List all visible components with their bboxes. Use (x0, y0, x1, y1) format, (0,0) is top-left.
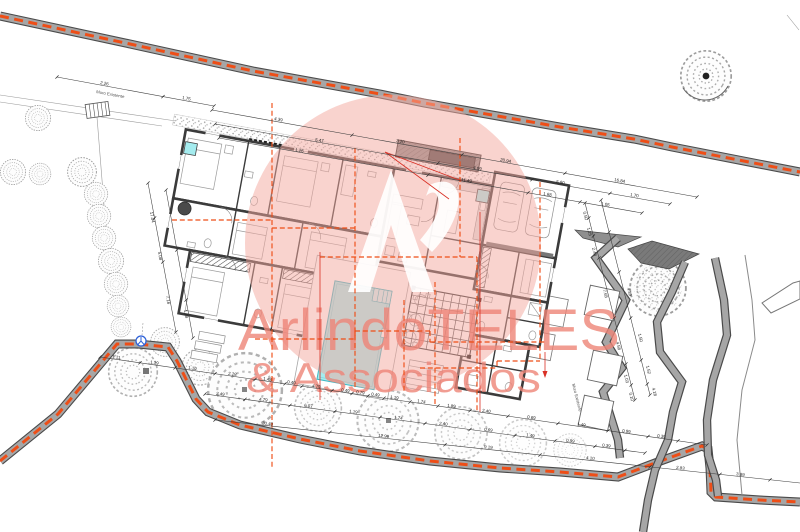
tree-symbol (87, 204, 111, 228)
tree-symbol (0, 159, 26, 185)
dimension-label: 5.08 (157, 251, 164, 261)
dimension-label: 1.70 (630, 192, 640, 199)
dimension-label: 0.99 (622, 428, 632, 434)
gate-symbol (85, 101, 110, 118)
tree-symbol (499, 419, 547, 467)
tree-symbol (29, 163, 51, 185)
dimension-label: 1.52 (645, 365, 652, 375)
dimension-label: 1.18 (183, 309, 190, 319)
corner-tick (787, 15, 799, 30)
water-tank (184, 142, 198, 156)
dimension-label: 7.16 (165, 295, 172, 305)
dimension-label: 4.18 (651, 387, 658, 397)
tree-symbol (111, 317, 131, 337)
wall-label-right: Muro Existente (571, 383, 583, 413)
dimension-label: 0.50 (582, 211, 589, 221)
road-arrow (762, 281, 800, 313)
dimension-label: 1.03 (623, 374, 630, 384)
site-plan-canvas: ArlindoTELES & Associados Muro Existente… (0, 0, 800, 532)
dimension-label: 16.84 (614, 177, 626, 184)
utility-symbol (136, 323, 146, 346)
dimension-label: 1.05 (601, 201, 611, 208)
level-arrow-head (543, 371, 548, 378)
dimension-label: 1.19 (349, 409, 359, 415)
tree-symbol (680, 50, 732, 102)
tree-symbol (25, 105, 51, 131)
dimension-label: 0.39 (602, 443, 612, 449)
path-outline (737, 255, 755, 495)
dimension-label: 1.50 (637, 333, 644, 343)
dimension-label: 3.89 (736, 471, 746, 477)
dimension-label: 1.49 (577, 422, 587, 428)
dimension-label: 1.75 (182, 95, 192, 102)
tree-symbol (107, 295, 129, 317)
dimension-label: 0.39 (657, 433, 667, 439)
tree-symbol (104, 272, 128, 296)
tree-symbol (67, 157, 97, 187)
tree-symbol (434, 406, 487, 459)
dimension-label: 9.19 (484, 444, 494, 450)
site-plan-drawing: ArlindoTELES & Associados Muro Existente… (0, 0, 800, 532)
dimension-label: 4.10 (586, 455, 596, 461)
tree-symbol (92, 226, 116, 250)
dimension-label: 30.40 (262, 420, 274, 426)
wall-label-top: Muro Existente (96, 89, 126, 99)
dimension-label: 2.83 (676, 465, 686, 471)
tree-symbol (98, 248, 124, 274)
dimension-label: 1.74 (417, 398, 427, 404)
tree-symbol (84, 182, 108, 206)
wall-path-c (707, 258, 727, 496)
dimension-label: 2.40 (482, 408, 492, 414)
dimension-label: 2.26 (100, 80, 110, 87)
dimension-label: 17.04 (149, 211, 156, 223)
dimension-label: 1.89 (447, 403, 457, 409)
